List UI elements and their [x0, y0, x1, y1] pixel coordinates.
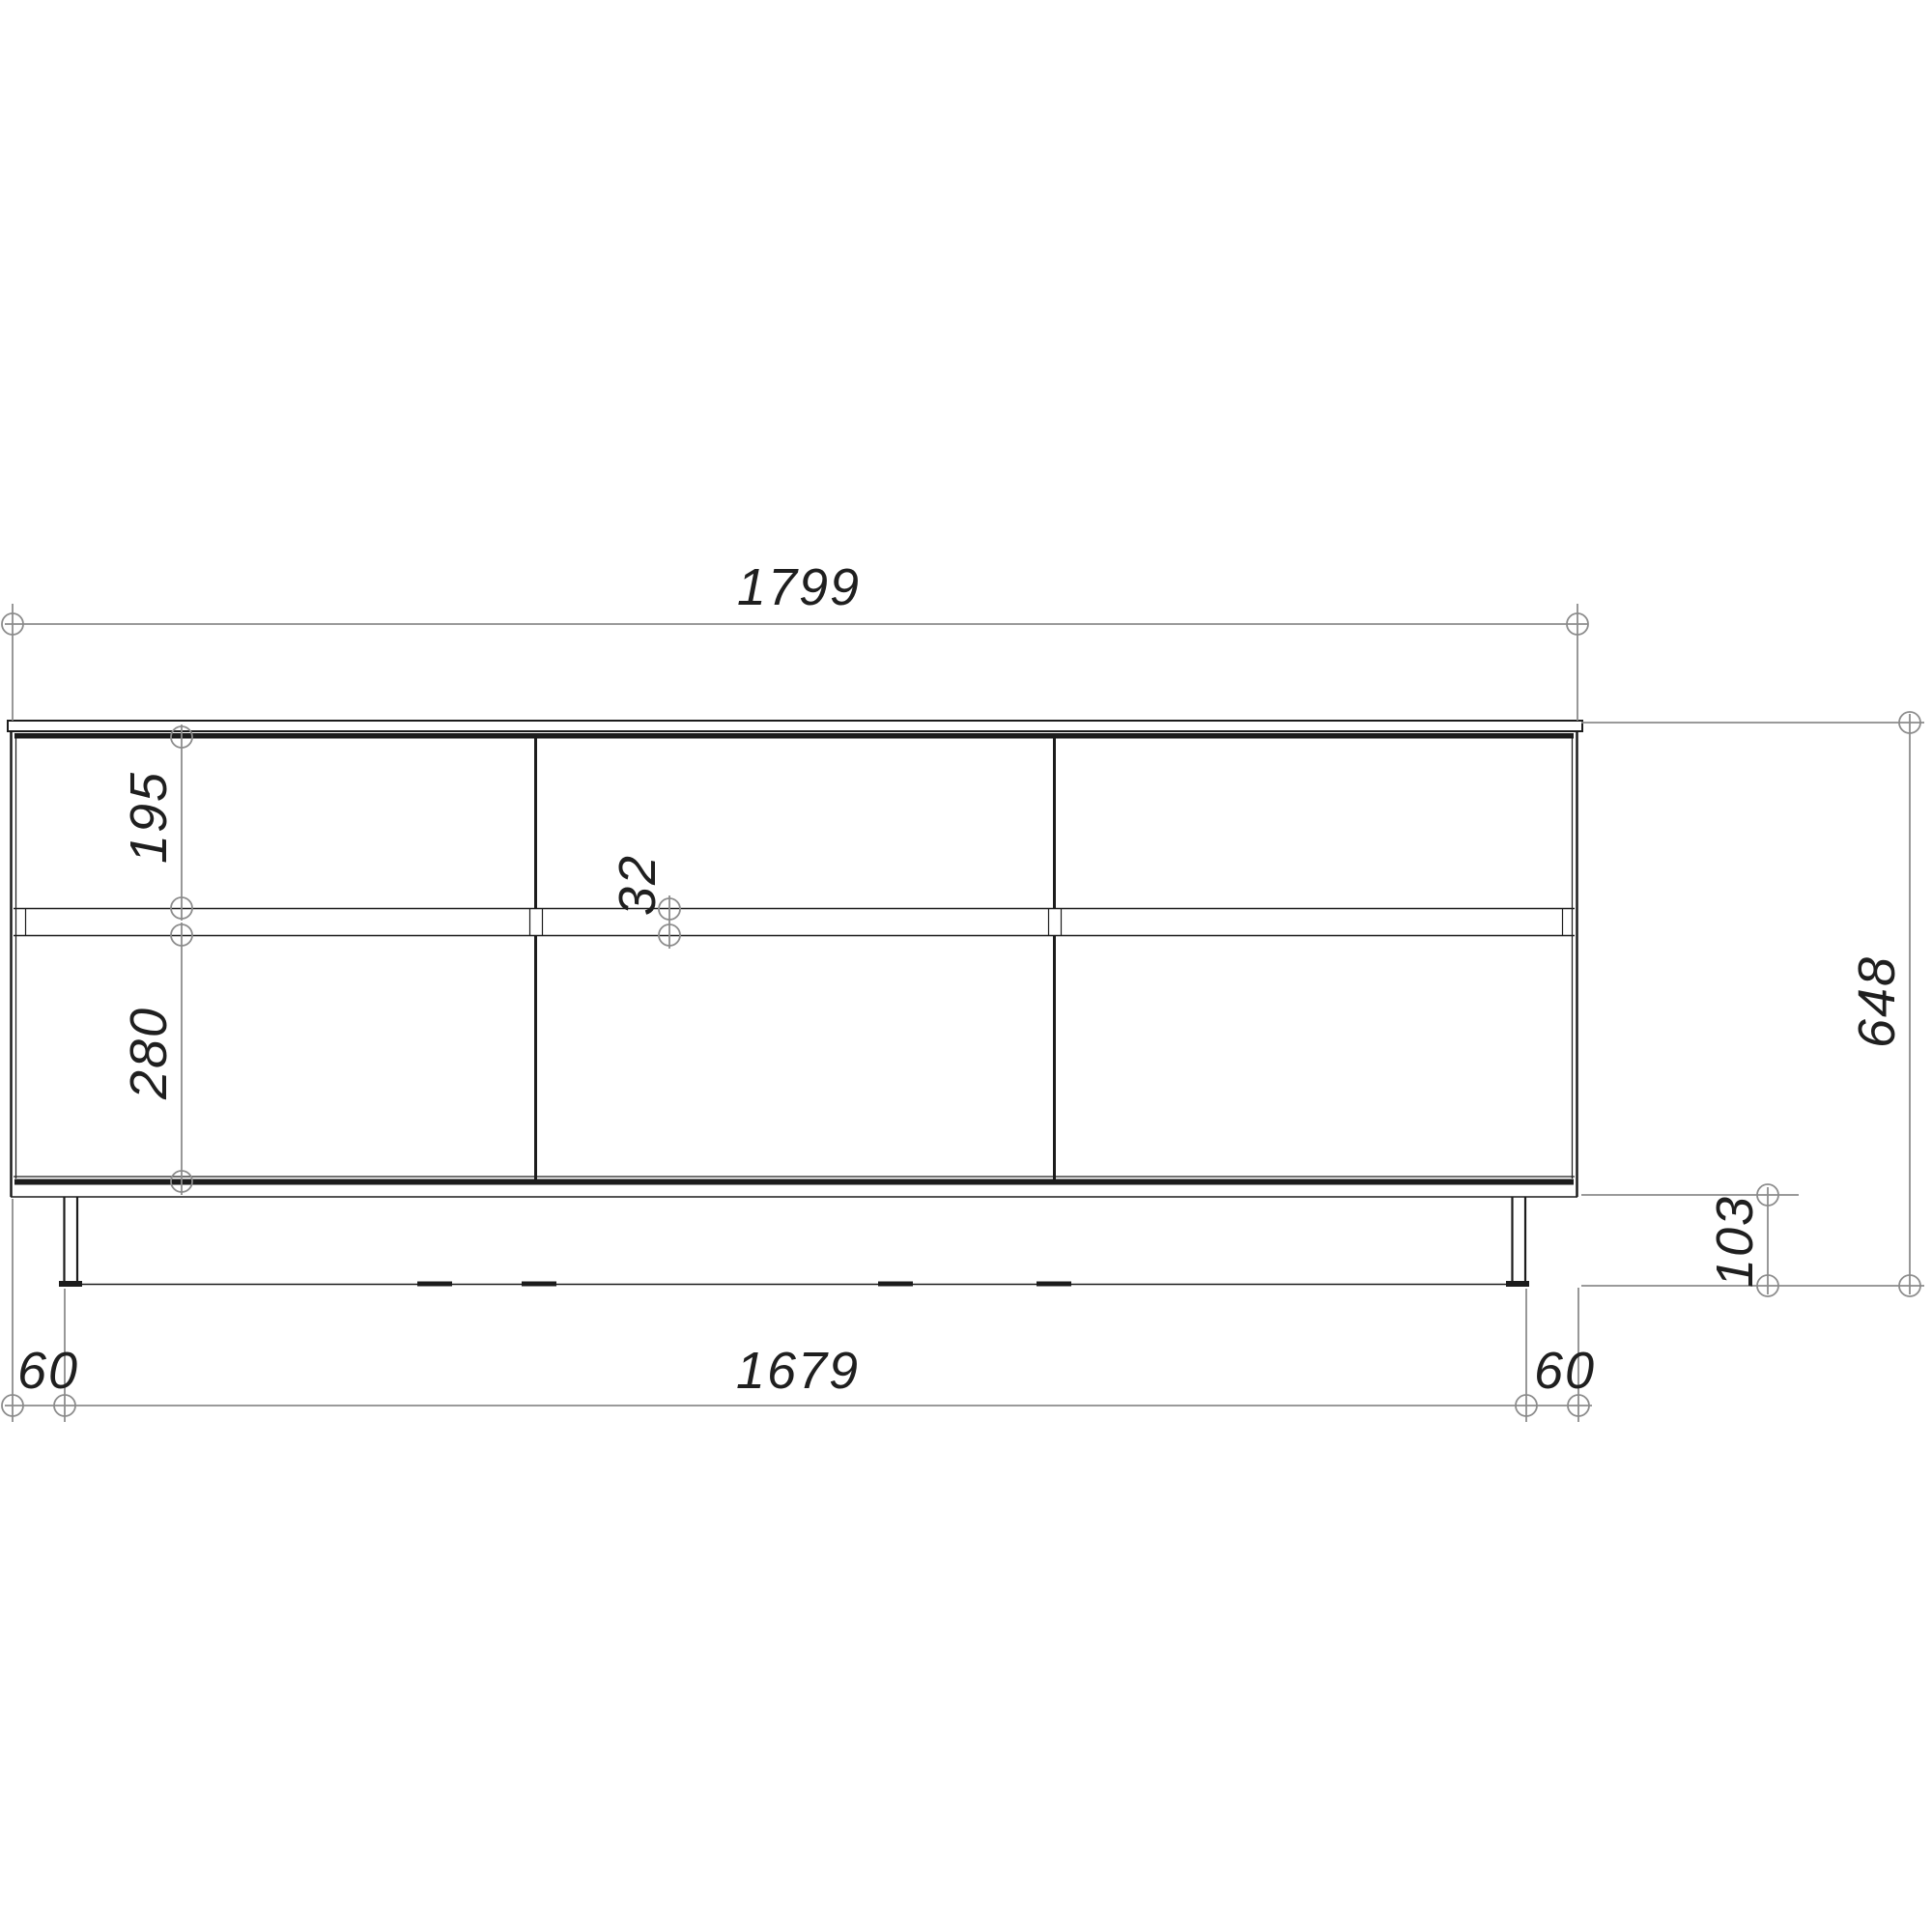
drawing-canvas: 1799 648 103 195 280 32 60 1679 60	[0, 0, 1932, 1932]
dim-overall-width	[2, 604, 1588, 721]
dim-label-leg-height: 103	[1706, 1195, 1764, 1288]
dim-label-door-height: 280	[120, 1007, 178, 1100]
dim-label-front-gap: 32	[609, 854, 667, 916]
furniture-dimension-drawing: 1799 648 103 195 280 32 60 1679 60	[0, 0, 1932, 1932]
bottom-shadow-gap	[14, 1179, 1574, 1185]
rear-leg-foot-4	[1037, 1282, 1071, 1287]
dim-label-overall-width: 1799	[737, 558, 861, 616]
rear-leg-foot-2	[522, 1282, 556, 1287]
cabinet-front-view	[8, 721, 1582, 1287]
rear-leg-foot-3	[878, 1282, 913, 1287]
dimension-labels: 1799 648 103 195 280 32 60 1679 60	[17, 558, 1906, 1400]
rear-leg-foot-1	[417, 1282, 452, 1287]
dim-label-right-inset: 60	[1534, 1342, 1596, 1400]
cabinet-top-panel	[8, 721, 1582, 731]
dimension-layer	[2, 604, 1924, 1422]
dim-label-leg-span: 1679	[736, 1342, 860, 1400]
right-leg-foot	[1506, 1281, 1529, 1287]
top-panel-shadow-gap	[14, 733, 1574, 739]
dim-label-drawer-height: 195	[120, 771, 178, 864]
dim-label-overall-height: 648	[1848, 955, 1906, 1048]
dim-leg-height	[1581, 1184, 1799, 1296]
dim-label-left-inset: 60	[17, 1342, 79, 1400]
left-leg-foot	[59, 1281, 82, 1287]
